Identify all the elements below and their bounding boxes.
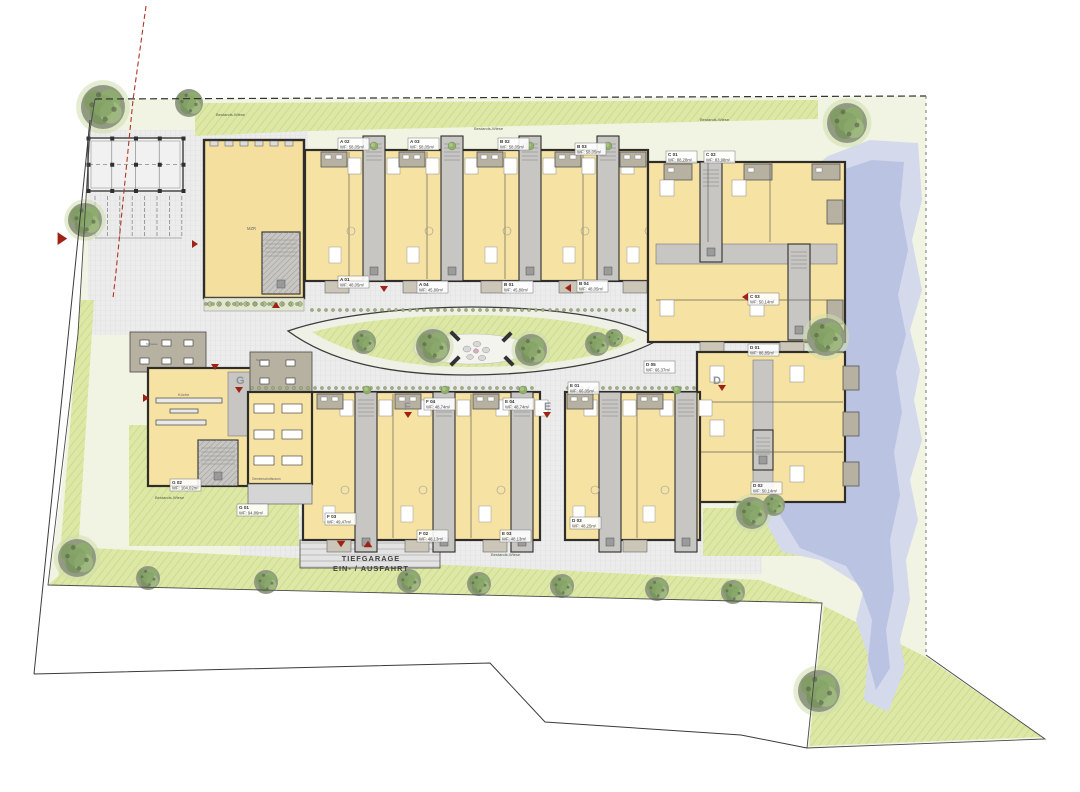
tree-texture (662, 589, 665, 592)
room (426, 158, 439, 174)
unit-id: A 01 (340, 277, 350, 282)
planting-dot (204, 302, 207, 305)
tree-texture (555, 583, 558, 586)
kitchen-island (170, 409, 198, 413)
planting-dot (453, 386, 456, 389)
unit-label: E 04WF: 48,74m² (503, 398, 534, 410)
planting-dot (306, 386, 309, 389)
stair-hatch (262, 232, 300, 294)
unit-label: C 02WF: 83,98m² (704, 151, 735, 163)
unit-label: C 03WF: 50,14m² (748, 293, 779, 305)
room (403, 155, 409, 159)
room (457, 400, 470, 416)
room (387, 158, 400, 174)
planting-dot (618, 308, 621, 311)
room-label: Terrasse (256, 358, 268, 362)
unit-id: A 02 (340, 139, 350, 144)
unit-id: G 01 (239, 505, 249, 510)
planting-dot (331, 308, 334, 311)
planting-dot (608, 386, 611, 389)
unit-label: E 03WF: 48,13m² (500, 530, 531, 542)
room-label: Gemeinschaftsraum (252, 477, 281, 481)
planting-dot (345, 308, 348, 311)
stair-core (363, 136, 385, 281)
unit-area: WF: 58,05m² (340, 145, 365, 150)
tree-foliage (260, 575, 272, 587)
unit-id: B 03 (577, 144, 587, 149)
elevator (606, 538, 614, 546)
tree (412, 325, 453, 366)
tree-texture (590, 341, 593, 344)
tree-texture (814, 333, 819, 338)
shrub (448, 142, 456, 150)
balcony (473, 394, 499, 409)
tree-texture (153, 578, 156, 581)
post (158, 137, 162, 141)
unit-label: F 02WF: 48,13m² (417, 530, 448, 542)
tree (803, 314, 849, 360)
shrub-highlight (371, 143, 375, 147)
tree-texture (71, 545, 76, 550)
tree (823, 99, 872, 148)
building-wing-ab (305, 136, 653, 293)
unit-area: WF: 48,74m² (426, 405, 451, 410)
planting-dot (355, 386, 358, 389)
tree (467, 572, 491, 596)
tree-foliage (556, 579, 568, 591)
planting-dot (397, 386, 400, 389)
building-letter: E (544, 401, 551, 413)
post (182, 163, 186, 167)
planting-dot (499, 308, 502, 311)
planting-dot (383, 386, 386, 389)
planting-dot (338, 308, 341, 311)
planting-dot (488, 386, 491, 389)
table (282, 430, 302, 439)
room (652, 397, 658, 401)
room (582, 158, 595, 174)
unit-id: A 03 (410, 139, 420, 144)
planting-dot (615, 386, 618, 389)
tree-texture (409, 586, 412, 589)
balcony (843, 412, 859, 436)
tree-texture (611, 332, 613, 334)
unit-id: A 04 (419, 282, 429, 287)
stone (473, 349, 478, 353)
planting-dot (443, 308, 446, 311)
strip-label: Bestands-Wiese (474, 126, 504, 131)
planting-dot (622, 386, 625, 389)
planting-dot (257, 386, 260, 389)
post (110, 137, 114, 141)
unit-id: D 01 (750, 345, 760, 350)
unit-label: B 03WF: 58,05m² (575, 143, 606, 155)
furniture (407, 247, 419, 263)
planting-dot (394, 308, 397, 311)
tree-texture (433, 353, 437, 357)
planting-dot (324, 308, 327, 311)
shrub-highlight (442, 387, 446, 391)
room (477, 397, 483, 401)
planting-dot (408, 308, 411, 311)
tree-foliage (403, 574, 415, 586)
tree-texture (855, 123, 860, 128)
post (134, 189, 138, 193)
tree-texture (747, 502, 751, 506)
room-label: Terrasse (146, 342, 158, 346)
unit-area: WF: 66,05m² (570, 389, 595, 394)
table (282, 404, 302, 413)
table (184, 340, 193, 346)
furniture (485, 247, 497, 263)
unit-area: WF: 48,05m² (340, 283, 365, 288)
unit-label: A 01WF: 48,05m² (338, 276, 369, 288)
unit-label: B 04WF: 48,05m² (577, 280, 608, 292)
tree-foliage (142, 571, 154, 583)
unit-id: E 01 (570, 383, 580, 388)
tree-texture (360, 334, 363, 337)
tree-texture (144, 570, 147, 573)
entrance-arrow (58, 232, 68, 245)
tree-foliage (523, 341, 539, 357)
planting-dot (211, 302, 214, 305)
planting-dot (317, 308, 320, 311)
unit-label: A 03WF: 58,05m² (408, 138, 439, 150)
planting-dot (313, 386, 316, 389)
furniture (643, 506, 655, 522)
planting-dot (401, 308, 404, 311)
planting-dot (460, 386, 463, 389)
planting-dot (657, 386, 660, 389)
tree-texture (812, 677, 817, 682)
unit-area: WF: 45,80m² (504, 288, 529, 293)
balcony (477, 152, 503, 167)
stone (467, 355, 474, 360)
room (379, 400, 392, 416)
planting-dot (264, 386, 267, 389)
post (110, 189, 114, 193)
planting-dot (520, 308, 523, 311)
site-plan-drawing: A 02WF: 58,05m²A 03WF: 58,05m²B 02WF: 58… (0, 0, 1080, 792)
tree-texture (726, 589, 729, 592)
room (321, 397, 327, 401)
planting-dot (341, 386, 344, 389)
room (641, 397, 647, 401)
room (332, 397, 338, 401)
tree-texture (91, 220, 95, 224)
planting-dot (636, 386, 639, 389)
tree-texture (742, 509, 746, 513)
planting-dot (404, 386, 407, 389)
unit-label: D 02WF: 50,14m² (751, 482, 782, 494)
strip-label: Bestands-Wiese (491, 552, 521, 557)
planting-dot (218, 302, 221, 305)
unit-label: F 04WF: 48,74m² (424, 398, 455, 410)
tree-texture (602, 344, 605, 347)
tree-foliage (744, 504, 760, 520)
building-wing-f (303, 392, 548, 552)
planting-dot (471, 308, 474, 311)
window (285, 141, 293, 146)
unit-label: G 01WF: 94,86m² (237, 504, 268, 516)
room-label: Küche (178, 392, 190, 397)
room-label: MZR (247, 226, 256, 231)
tree-texture (84, 558, 89, 563)
unit-label: E 01WF: 66,05m² (568, 382, 599, 394)
shrub (363, 386, 371, 394)
shrub (673, 386, 681, 394)
window (225, 141, 233, 146)
tree-texture (526, 339, 530, 343)
hall-stair (262, 232, 300, 294)
planting-dot (534, 308, 537, 311)
unit-label: B 01WF: 45,80m² (502, 281, 533, 293)
planting-dot (506, 308, 509, 311)
kitchen-counter (156, 398, 222, 403)
tree-texture (479, 589, 482, 592)
planting-dot (425, 386, 428, 389)
planting-dot (285, 386, 288, 389)
balcony (843, 462, 859, 486)
planting-dot (436, 308, 439, 311)
planting-dot (450, 308, 453, 311)
window (270, 141, 278, 146)
tree-texture (472, 581, 475, 584)
tree-texture (758, 513, 762, 517)
tree-texture (558, 578, 561, 581)
tree-foliage (809, 679, 830, 700)
planting-dot (457, 308, 460, 311)
tree-texture (96, 92, 101, 97)
tree-texture (189, 109, 192, 112)
tree-texture (148, 583, 151, 586)
room (336, 155, 342, 159)
unit-id: B 04 (579, 281, 589, 286)
unit-label: C 01WF: 88,28m² (666, 151, 697, 163)
shrub-highlight (674, 387, 678, 391)
elevator (526, 267, 534, 275)
shrub (370, 142, 378, 150)
tree-foliage (92, 95, 114, 117)
planting-dot (474, 386, 477, 389)
table (140, 358, 149, 364)
tree-texture (364, 347, 367, 350)
tree-texture (111, 107, 116, 112)
tree-texture (835, 119, 840, 124)
unit-area: WF: 58,05m² (410, 145, 435, 150)
unit-id: C 02 (706, 152, 716, 157)
post (110, 163, 114, 167)
planting-dot (527, 308, 530, 311)
service-rooms (248, 484, 312, 504)
unit-area: WF: 86,85m² (750, 351, 775, 356)
unit-id: E 04 (505, 399, 515, 404)
corridor (753, 360, 773, 494)
tree-texture (74, 216, 78, 220)
tree-texture (259, 579, 262, 582)
g-stair (198, 440, 238, 486)
room (816, 168, 822, 172)
room (465, 158, 478, 174)
stair-core (597, 136, 619, 281)
balcony (399, 152, 425, 167)
planting-dot (513, 308, 516, 311)
tree-texture (521, 346, 525, 350)
planting-dot (429, 308, 432, 311)
shrub (519, 386, 527, 394)
planting-dot (239, 302, 242, 305)
unit-area: WF: 104,02m² (172, 486, 199, 491)
tree-texture (475, 576, 478, 579)
tree-texture (414, 581, 417, 584)
planting-dot (225, 302, 228, 305)
window (240, 141, 248, 146)
elevator (370, 267, 378, 275)
elevator (795, 326, 803, 334)
kitchen-counter (156, 420, 206, 425)
tree-foliage (68, 548, 87, 567)
unit-label: D 05WF: 66,37m² (644, 361, 675, 373)
planting-dot (292, 386, 295, 389)
table (286, 360, 295, 366)
tree-texture (597, 349, 600, 352)
unit-area: WF: 48,05m² (579, 287, 604, 292)
tree-texture (653, 581, 656, 584)
planting-dot (611, 308, 614, 311)
stone (478, 355, 486, 360)
tree-texture (562, 591, 565, 594)
tree-texture (262, 574, 265, 577)
unit-area: WF: 88,28m² (668, 158, 693, 163)
tree (511, 330, 550, 369)
unit-area: WF: 94,86m² (239, 511, 264, 516)
unit-area: WF: 48,13m² (419, 537, 444, 542)
tree (645, 577, 669, 601)
planting-dot (376, 386, 379, 389)
planting-dot (310, 308, 313, 311)
unit-id: F 02 (419, 531, 429, 536)
planting-dot (467, 386, 470, 389)
tree-texture (826, 345, 831, 350)
tiefgarage-line2: EIN- / AUSFAHRT (333, 564, 409, 573)
tree-texture (770, 498, 773, 501)
shrub-highlight (364, 387, 368, 391)
tree-texture (806, 686, 811, 691)
planting-dot (320, 386, 323, 389)
room (668, 168, 674, 172)
planting-dot (432, 386, 435, 389)
balcony (827, 200, 843, 224)
tree-texture (593, 336, 596, 339)
tree-foliage (651, 582, 663, 594)
post (158, 189, 162, 193)
stone (463, 346, 471, 352)
stair-hatch (198, 440, 238, 486)
planting-dot (685, 386, 688, 389)
tree-texture (847, 132, 852, 137)
planting-dot (387, 308, 390, 311)
balcony (843, 366, 859, 390)
tree-texture (271, 582, 274, 585)
tree (76, 80, 130, 134)
tiefgarage-line1: TIEFGARAGE (342, 554, 400, 563)
strip-label: Bestands-Wiese (155, 495, 185, 500)
room (748, 168, 754, 172)
tree-foliage (591, 337, 603, 349)
unit-area: WF: 45,80m² (419, 288, 444, 293)
tree (550, 574, 574, 598)
tree (605, 329, 623, 347)
tree-texture (650, 586, 653, 589)
room (570, 155, 576, 159)
post (134, 163, 138, 167)
room (790, 366, 804, 382)
planting-dot (643, 386, 646, 389)
tree-foliage (358, 335, 370, 347)
unit-area: WF: 49,47m² (327, 520, 352, 525)
tree-foliage (610, 333, 619, 342)
planting-dot (576, 308, 579, 311)
terrace (130, 332, 206, 372)
room (582, 397, 588, 401)
room (348, 158, 361, 174)
room (410, 397, 416, 401)
table (254, 404, 274, 413)
unit-area: WF: 48,25m² (572, 524, 597, 529)
planting-dot (492, 308, 495, 311)
planting-dot (548, 308, 551, 311)
elevator (604, 267, 612, 275)
unit-id: D 05 (646, 362, 656, 367)
planting-dot (478, 308, 481, 311)
tree-texture (841, 110, 846, 115)
room (559, 155, 565, 159)
neighbor-parcel-line-south (34, 663, 807, 748)
tree-texture (778, 505, 781, 508)
tree-foliage (473, 577, 485, 589)
tree-texture (405, 573, 408, 576)
furniture (479, 506, 491, 522)
tree-texture (617, 338, 619, 340)
unit-area: WF: 58,05m² (500, 145, 525, 150)
tree-texture (65, 554, 70, 559)
post (134, 137, 138, 141)
planting-dot (418, 386, 421, 389)
tree (136, 566, 160, 590)
tree-texture (80, 209, 84, 213)
tree (793, 665, 844, 716)
tree (175, 89, 203, 117)
tree-texture (733, 597, 736, 600)
tree-texture (85, 227, 89, 231)
unit-area: WF: 48,74m² (505, 405, 530, 410)
unit-id: B 01 (504, 282, 514, 287)
unit-label: D 01WF: 86,85m² (748, 344, 779, 356)
room (414, 155, 420, 159)
planting-dot (664, 386, 667, 389)
elevator (759, 456, 767, 464)
shrub-highlight (520, 387, 524, 391)
room (660, 300, 674, 316)
unit-id: C 03 (750, 294, 760, 299)
patio (481, 281, 505, 293)
tree-texture (141, 575, 144, 578)
planting-dot (271, 386, 274, 389)
tree-texture (819, 700, 824, 705)
table (162, 340, 171, 346)
room (481, 155, 487, 159)
tree-texture (567, 586, 570, 589)
